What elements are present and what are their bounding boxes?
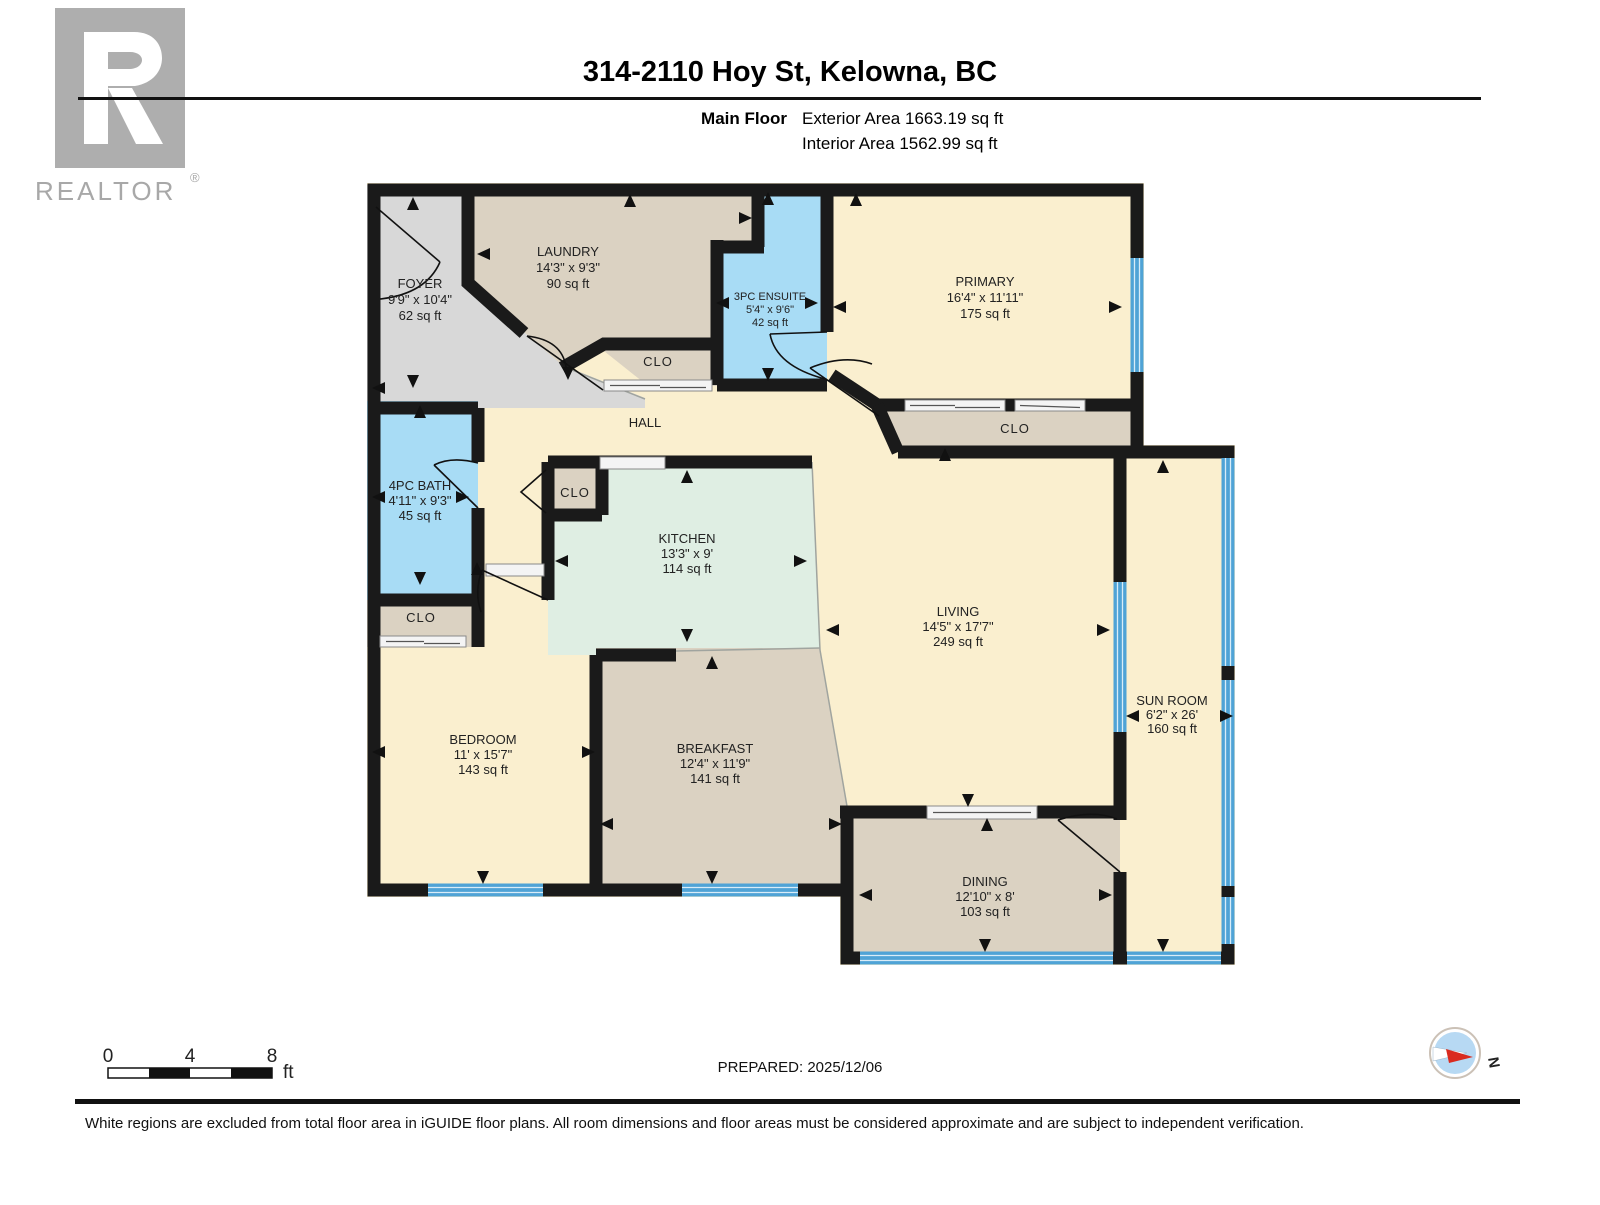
cased-opening (486, 564, 544, 576)
window (1131, 258, 1144, 372)
svg-text:3PC ENSUITE: 3PC ENSUITE (734, 291, 806, 303)
svg-text:BREAKFAST: BREAKFAST (677, 741, 754, 756)
svg-text:16'4" x 11'11": 16'4" x 11'11" (947, 290, 1024, 305)
header-divider (78, 97, 1481, 100)
disclaimer-text: White regions are excluded from total fl… (85, 1115, 1304, 1132)
closet-bath-label: CLO (406, 610, 436, 625)
svg-text:KITCHEN: KITCHEN (658, 531, 715, 546)
window (682, 884, 798, 897)
svg-text:LAUNDRY: LAUNDRY (537, 244, 599, 259)
svg-text:42 sq ft: 42 sq ft (752, 317, 788, 329)
svg-text:11' x 15'7": 11' x 15'7" (454, 747, 513, 762)
window (428, 884, 543, 897)
window (860, 952, 1113, 965)
closet-kitchen-label: CLO (560, 485, 590, 500)
svg-text:143 sq ft: 143 sq ft (458, 762, 508, 777)
prepared-date: PREPARED: 2025/12/06 (718, 1059, 883, 1076)
scale-tick-0: 0 (103, 1046, 114, 1067)
footer-divider (75, 1099, 1520, 1104)
svg-text:103 sq ft: 103 sq ft (960, 904, 1010, 919)
floor-label: Main Floor (701, 109, 787, 128)
svg-text:12'4" x 11'9": 12'4" x 11'9" (680, 756, 751, 771)
compass-north-label: N (1484, 1056, 1503, 1070)
floor-plan-page: REALTOR ® 314-2110 Hoy St, Kelowna, BC M… (0, 0, 1600, 1200)
svg-text:6'2" x 26': 6'2" x 26' (1146, 707, 1198, 722)
cased-opening (600, 457, 665, 469)
scale-bar: 0 4 8 ft (103, 1046, 295, 1083)
svg-text:DINING: DINING (962, 874, 1008, 889)
svg-text:PRIMARY: PRIMARY (956, 274, 1015, 289)
svg-text:62 sq ft: 62 sq ft (399, 308, 442, 323)
window (1222, 680, 1235, 886)
scale-tick-8: 8 (267, 1046, 278, 1067)
floor-plan: FOYER9'9" x 10'4"62 sq ft LAUNDRY14'3" x… (367, 183, 1235, 965)
compass-icon: N (1430, 1028, 1503, 1078)
window (1127, 952, 1221, 965)
svg-text:14'3" x 9'3": 14'3" x 9'3" (536, 260, 600, 275)
kitchen-label: KITCHEN13'3" x 9'114 sq ft (658, 531, 715, 576)
exterior-area: Exterior Area 1663.19 sq ft (802, 109, 1004, 128)
realtor-logo: REALTOR ® (35, 8, 200, 206)
registered-mark-icon: ® (190, 170, 200, 185)
svg-text:90 sq ft: 90 sq ft (547, 276, 590, 291)
page-title: 314-2110 Hoy St, Kelowna, BC (583, 56, 997, 88)
scale-tick-4: 4 (185, 1046, 196, 1067)
svg-text:175 sq ft: 175 sq ft (960, 306, 1010, 321)
scale-unit: ft (283, 1062, 294, 1083)
svg-text:5'4" x 9'6": 5'4" x 9'6" (746, 304, 794, 316)
svg-text:45 sq ft: 45 sq ft (399, 508, 442, 523)
bedroom-label: BEDROOM11' x 15'7"143 sq ft (449, 732, 516, 777)
window (1222, 897, 1235, 944)
hall-label: HALL (629, 415, 662, 430)
svg-text:SUN ROOM: SUN ROOM (1136, 693, 1208, 708)
svg-text:12'10" x 8': 12'10" x 8' (955, 889, 1014, 904)
svg-text:141 sq ft: 141 sq ft (690, 771, 740, 786)
svg-text:13'3" x 9': 13'3" x 9' (661, 546, 713, 561)
closet-primary-label: CLO (1000, 421, 1030, 436)
svg-text:14'5" x 17'7": 14'5" x 17'7" (922, 619, 994, 634)
svg-text:BEDROOM: BEDROOM (449, 732, 516, 747)
svg-text:249 sq ft: 249 sq ft (933, 634, 983, 649)
svg-text:FOYER: FOYER (398, 276, 443, 291)
realtor-logo-text: REALTOR (35, 176, 176, 206)
svg-text:9'9" x 10'4": 9'9" x 10'4" (388, 292, 452, 307)
interior-area: Interior Area 1562.99 sq ft (802, 134, 998, 153)
svg-text:4PC BATH: 4PC BATH (389, 478, 452, 493)
window (1222, 458, 1235, 666)
svg-text:114 sq ft: 114 sq ft (663, 561, 712, 576)
svg-text:160 sq ft: 160 sq ft (1147, 721, 1197, 736)
svg-text:4'11" x 9'3": 4'11" x 9'3" (388, 493, 451, 508)
window (1114, 582, 1127, 732)
dining-label: DINING12'10" x 8'103 sq ft (955, 874, 1014, 919)
svg-text:LIVING: LIVING (937, 604, 980, 619)
closet-hall-label: CLO (643, 354, 673, 369)
